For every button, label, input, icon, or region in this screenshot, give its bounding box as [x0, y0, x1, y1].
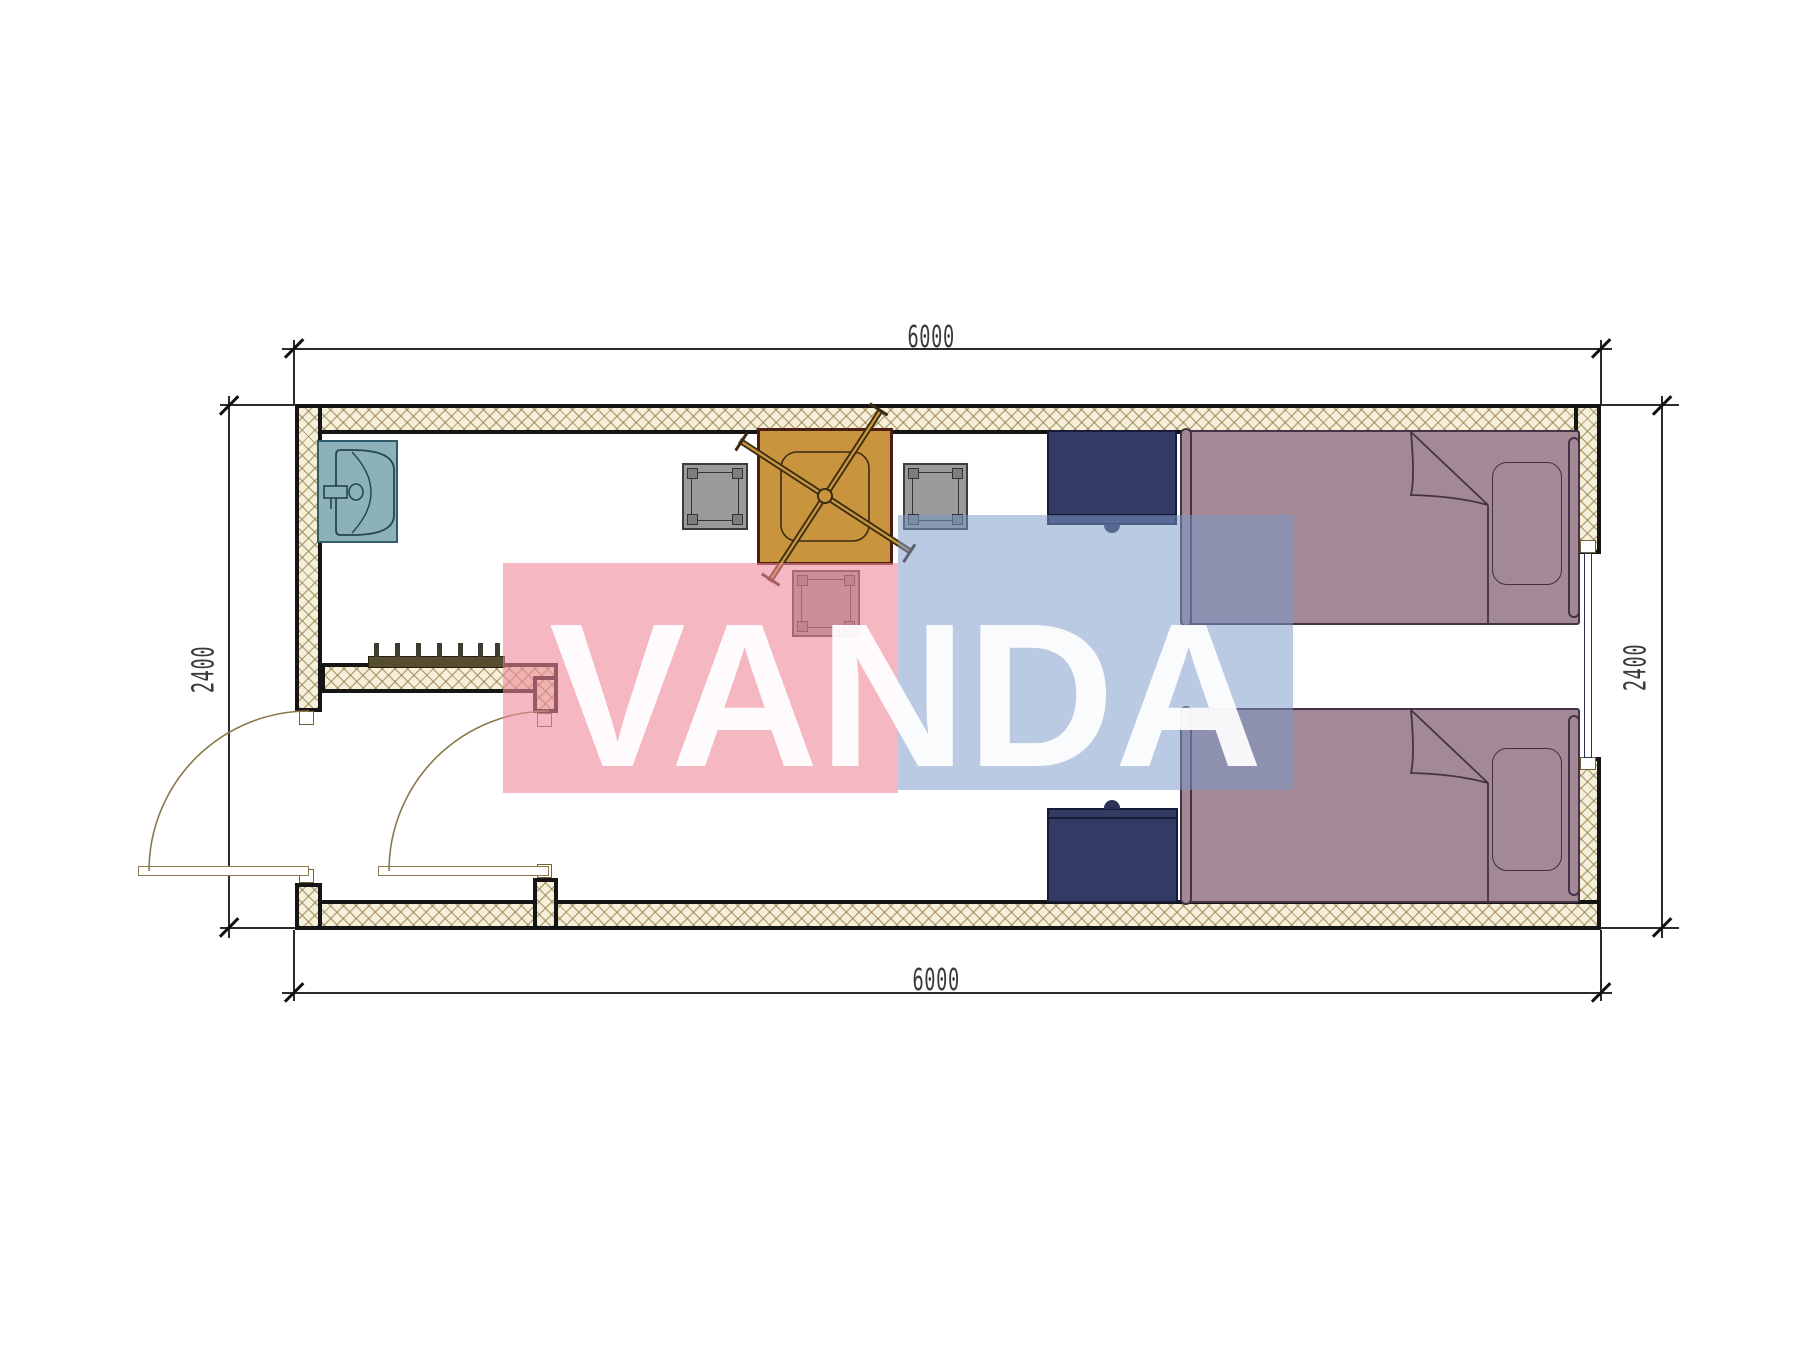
door-jamb — [299, 711, 314, 725]
window-jamb — [1580, 757, 1596, 770]
bed-footboard — [1568, 715, 1580, 896]
pillow-icon — [1492, 748, 1562, 871]
nightstand-top — [1047, 430, 1177, 525]
coat-rack-peg — [395, 643, 400, 657]
wall-stub-bottom-left — [295, 883, 322, 930]
door-leaf-right — [378, 866, 549, 876]
bed-footboard — [1568, 437, 1580, 618]
window-icon — [1584, 553, 1592, 758]
coat-rack-peg — [495, 643, 500, 657]
coat-rack-peg — [437, 643, 442, 657]
coat-rack-peg — [478, 643, 483, 657]
dim-label-left: 2400 — [187, 631, 222, 707]
ext-line-right-top — [1601, 404, 1679, 406]
ext-line-left-bottom — [220, 927, 296, 929]
coat-rack-peg — [374, 643, 379, 657]
wall-bottom — [295, 900, 1601, 930]
door-leaf-left — [138, 866, 309, 876]
ext-line-right-bottom — [1601, 927, 1679, 929]
sink-icon — [317, 440, 398, 543]
coat-rack — [368, 656, 505, 668]
dim-label-right: 2400 — [1619, 629, 1654, 705]
dim-label-bottom: 6000 — [898, 963, 974, 998]
pillow-icon — [1492, 462, 1562, 585]
nightstand-bottom — [1047, 808, 1178, 903]
floor-plan-canvas: 6000 6000 2400 2400 — [0, 0, 1800, 1350]
watermark-text: VANDA — [549, 593, 1263, 798]
dim-line-left — [228, 396, 230, 938]
dim-line-right — [1661, 396, 1663, 938]
window-jamb — [1580, 540, 1596, 553]
stool-left — [682, 463, 748, 530]
coat-rack-peg — [416, 643, 421, 657]
wall-stub-vestibule — [533, 878, 558, 930]
coat-rack-peg — [458, 643, 463, 657]
table-icon — [757, 428, 893, 565]
dim-label-top: 6000 — [893, 320, 969, 355]
